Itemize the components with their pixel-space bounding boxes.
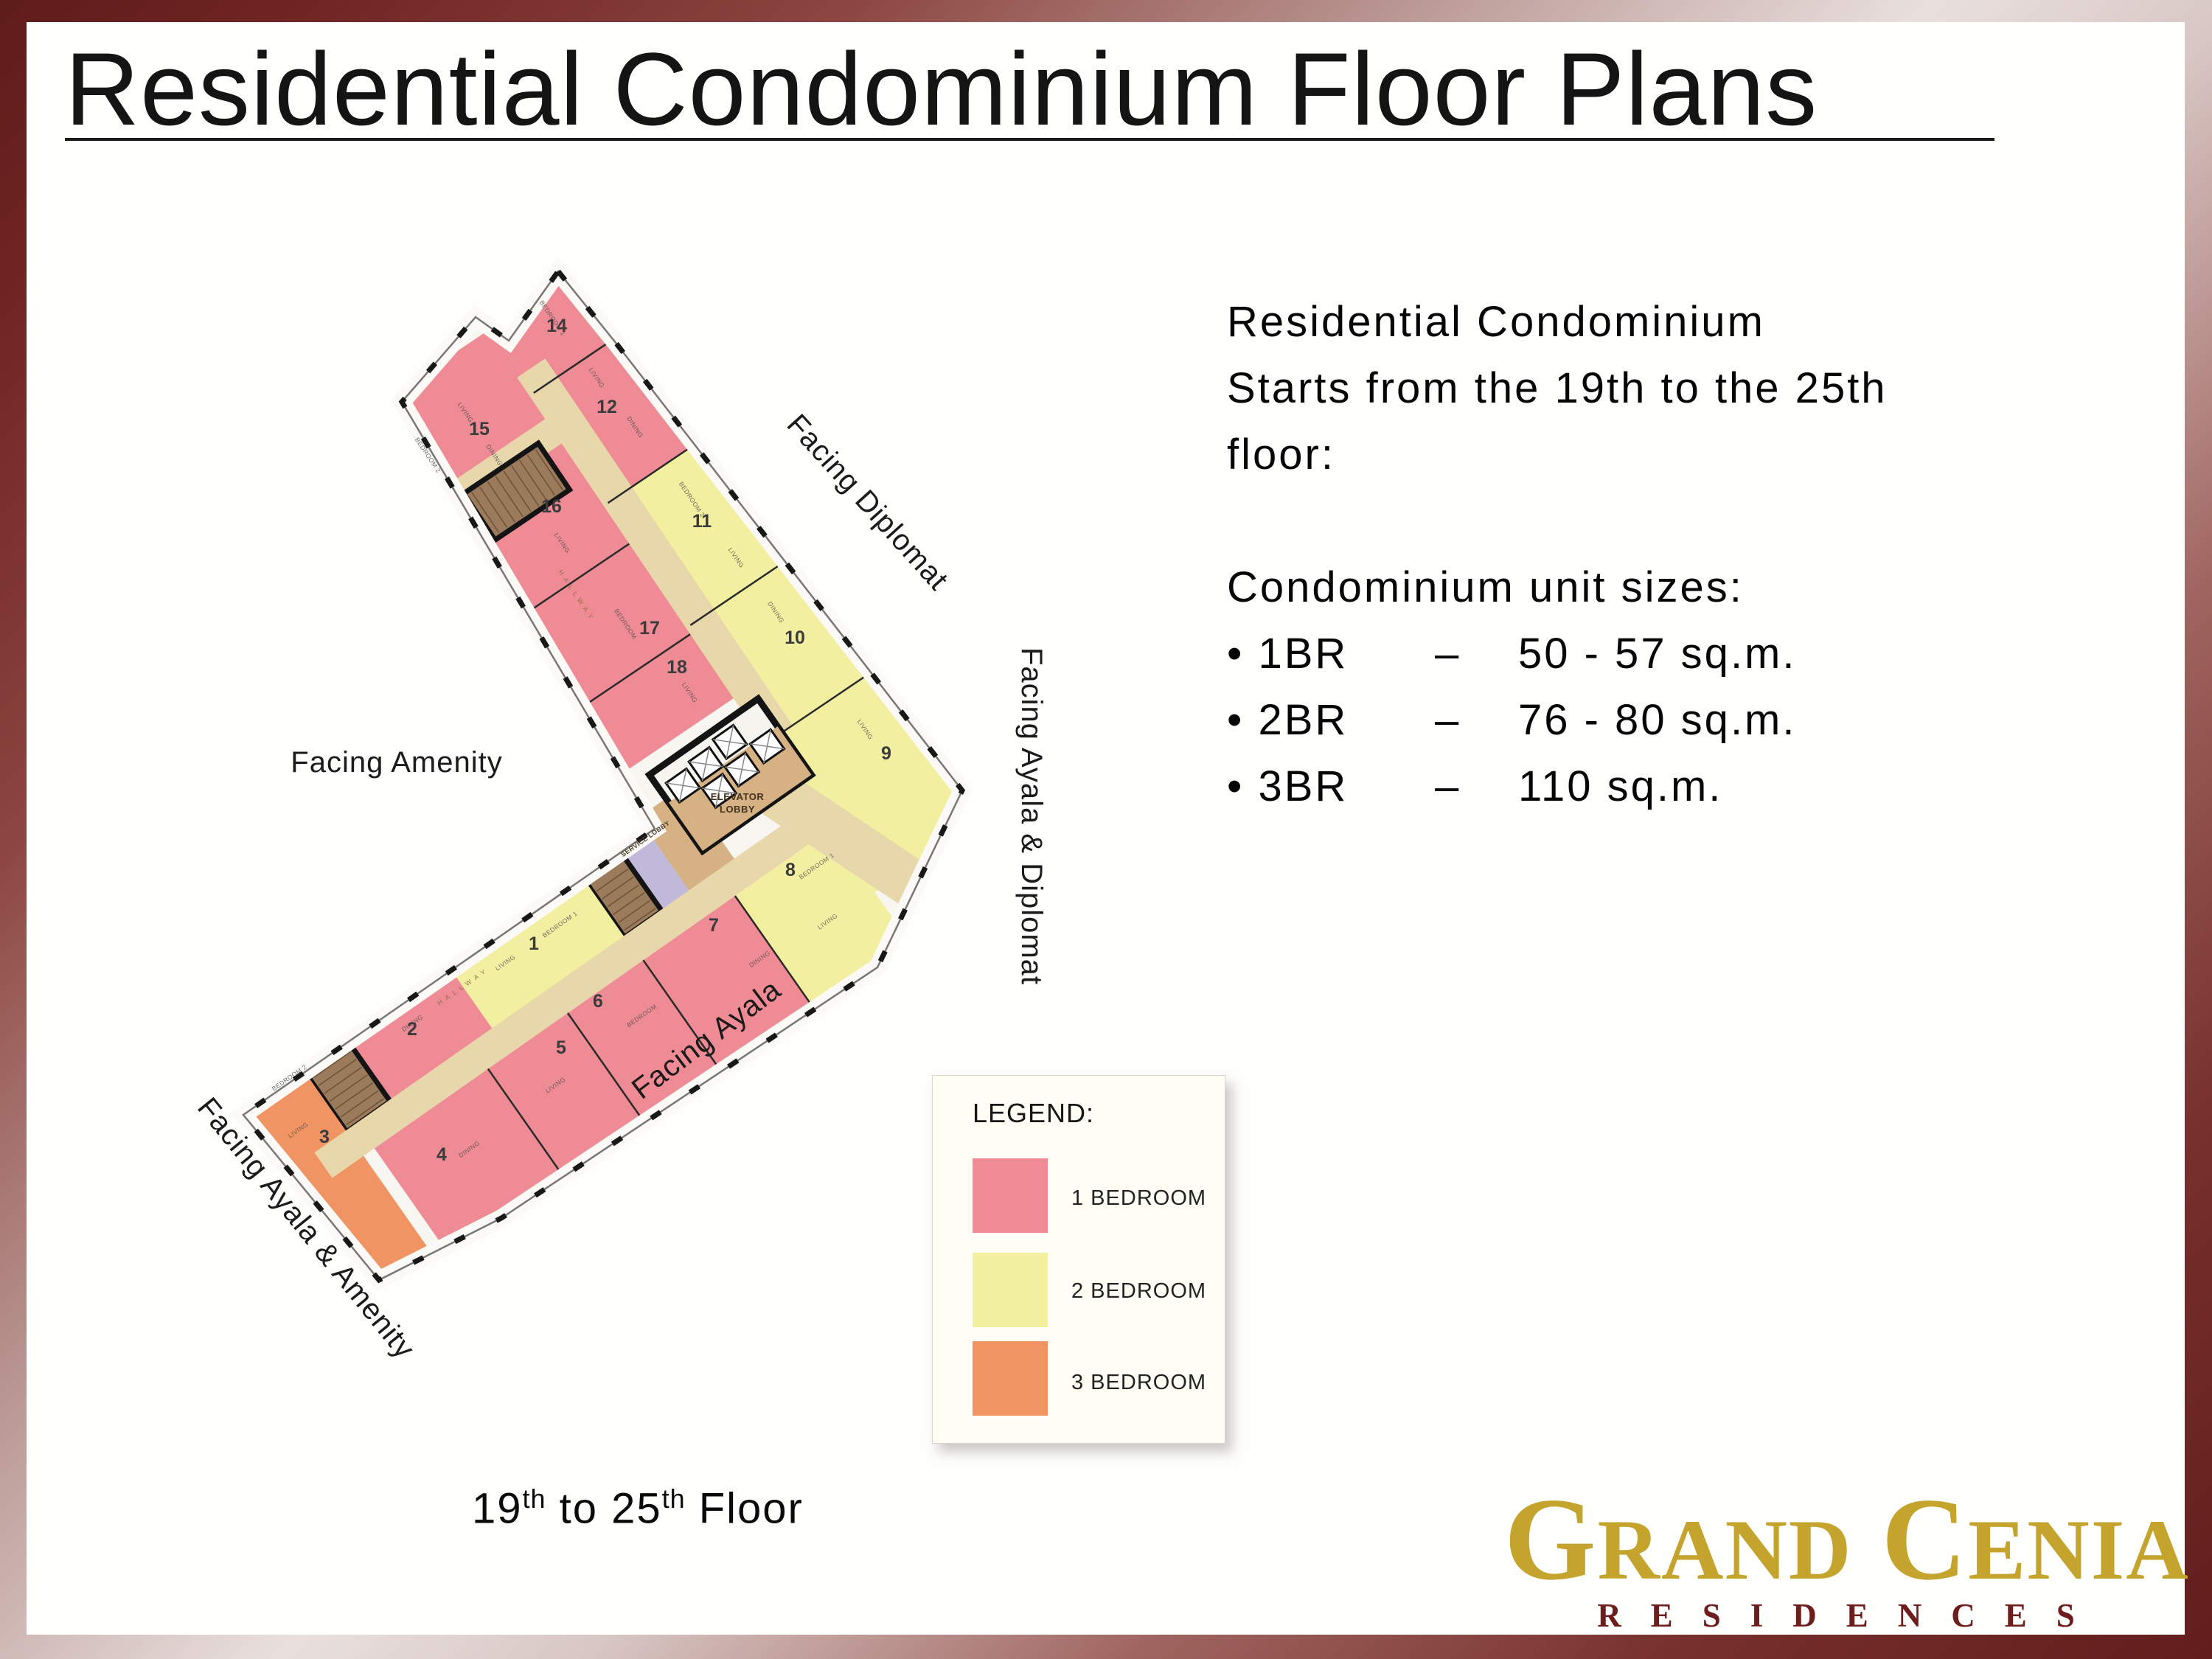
bullet-dash: – — [1435, 754, 1518, 820]
bullet-value: 76 - 80 sq.m. — [1518, 687, 1796, 754]
unit-number-5: 5 — [556, 1037, 566, 1058]
bullet-label: • 2BR — [1227, 687, 1435, 754]
floor-plan-diagram: ELEVATORLOBBYSERVICE LOBBYHALLWAYHALLWAY… — [221, 251, 1143, 1371]
unit-number-16: 16 — [541, 496, 562, 517]
info-spacer — [1227, 488, 2075, 554]
unit-number-18: 18 — [667, 657, 687, 678]
legend-label-3br: 3 BEDROOM — [1071, 1371, 1206, 1395]
unit-number-1: 1 — [529, 933, 539, 954]
page-title: Residential Condominium Floor Plans — [65, 29, 2093, 149]
bullet-value: 110 sq.m. — [1518, 754, 1722, 820]
unit-number-7: 7 — [709, 915, 719, 936]
info-line-1: Residential Condominium — [1227, 289, 2075, 355]
facing-label: Facing Diplomat — [781, 408, 955, 597]
unit-number-8: 8 — [785, 860, 796, 880]
facing-label: Facing Ayala & Diplomat — [1015, 647, 1048, 985]
bullet-dash: – — [1435, 621, 1518, 687]
unit-number-17: 17 — [639, 618, 660, 639]
unit-number-12: 12 — [597, 397, 617, 417]
unit-number-14: 14 — [546, 316, 567, 336]
bullet-row-1br: • 1BR – 50 - 57 sq.m. — [1227, 621, 2075, 687]
svg-text:LOBBY: LOBBY — [720, 804, 755, 815]
info-block: Residential Condominium Starts from the … — [1227, 289, 2075, 820]
unit-number-10: 10 — [785, 627, 805, 648]
unit-number-4: 4 — [437, 1144, 447, 1165]
info-line-2: Starts from the 19th to the 25th — [1227, 355, 2075, 422]
info-line-3: floor: — [1227, 422, 2075, 488]
unit-number-2: 2 — [407, 1019, 417, 1040]
bullet-row-2br: • 2BR – 76 - 80 sq.m. — [1227, 687, 2075, 754]
bullet-dash: – — [1435, 687, 1518, 754]
unit-number-6: 6 — [593, 991, 603, 1012]
logo-subtitle: RESIDENCES — [1504, 1596, 2168, 1635]
bullet-label: • 3BR — [1227, 754, 1435, 820]
unit-number-15: 15 — [469, 419, 490, 439]
unit-number-3: 3 — [319, 1127, 330, 1147]
logo-grand-cenia: GRAND CENIA — [1504, 1471, 2168, 1607]
bullet-label: • 1BR — [1227, 621, 1435, 687]
title-underline — [65, 138, 1994, 141]
unit-number-9: 9 — [881, 743, 891, 764]
bullet-row-3br: • 3BR – 110 sq.m. — [1227, 754, 2075, 820]
facing-label: Facing Amenity — [291, 746, 502, 779]
bullet-value: 50 - 57 sq.m. — [1518, 621, 1796, 687]
slide-root: { "slide": { "title": "Residential Condo… — [0, 0, 2212, 1659]
unit-sizes-heading: Condominium unit sizes: — [1227, 554, 2075, 621]
unit-number-11: 11 — [692, 511, 712, 532]
floor-range-label: 19th to 25th Floor — [472, 1484, 804, 1533]
svg-text:ELEVATOR: ELEVATOR — [711, 791, 765, 802]
